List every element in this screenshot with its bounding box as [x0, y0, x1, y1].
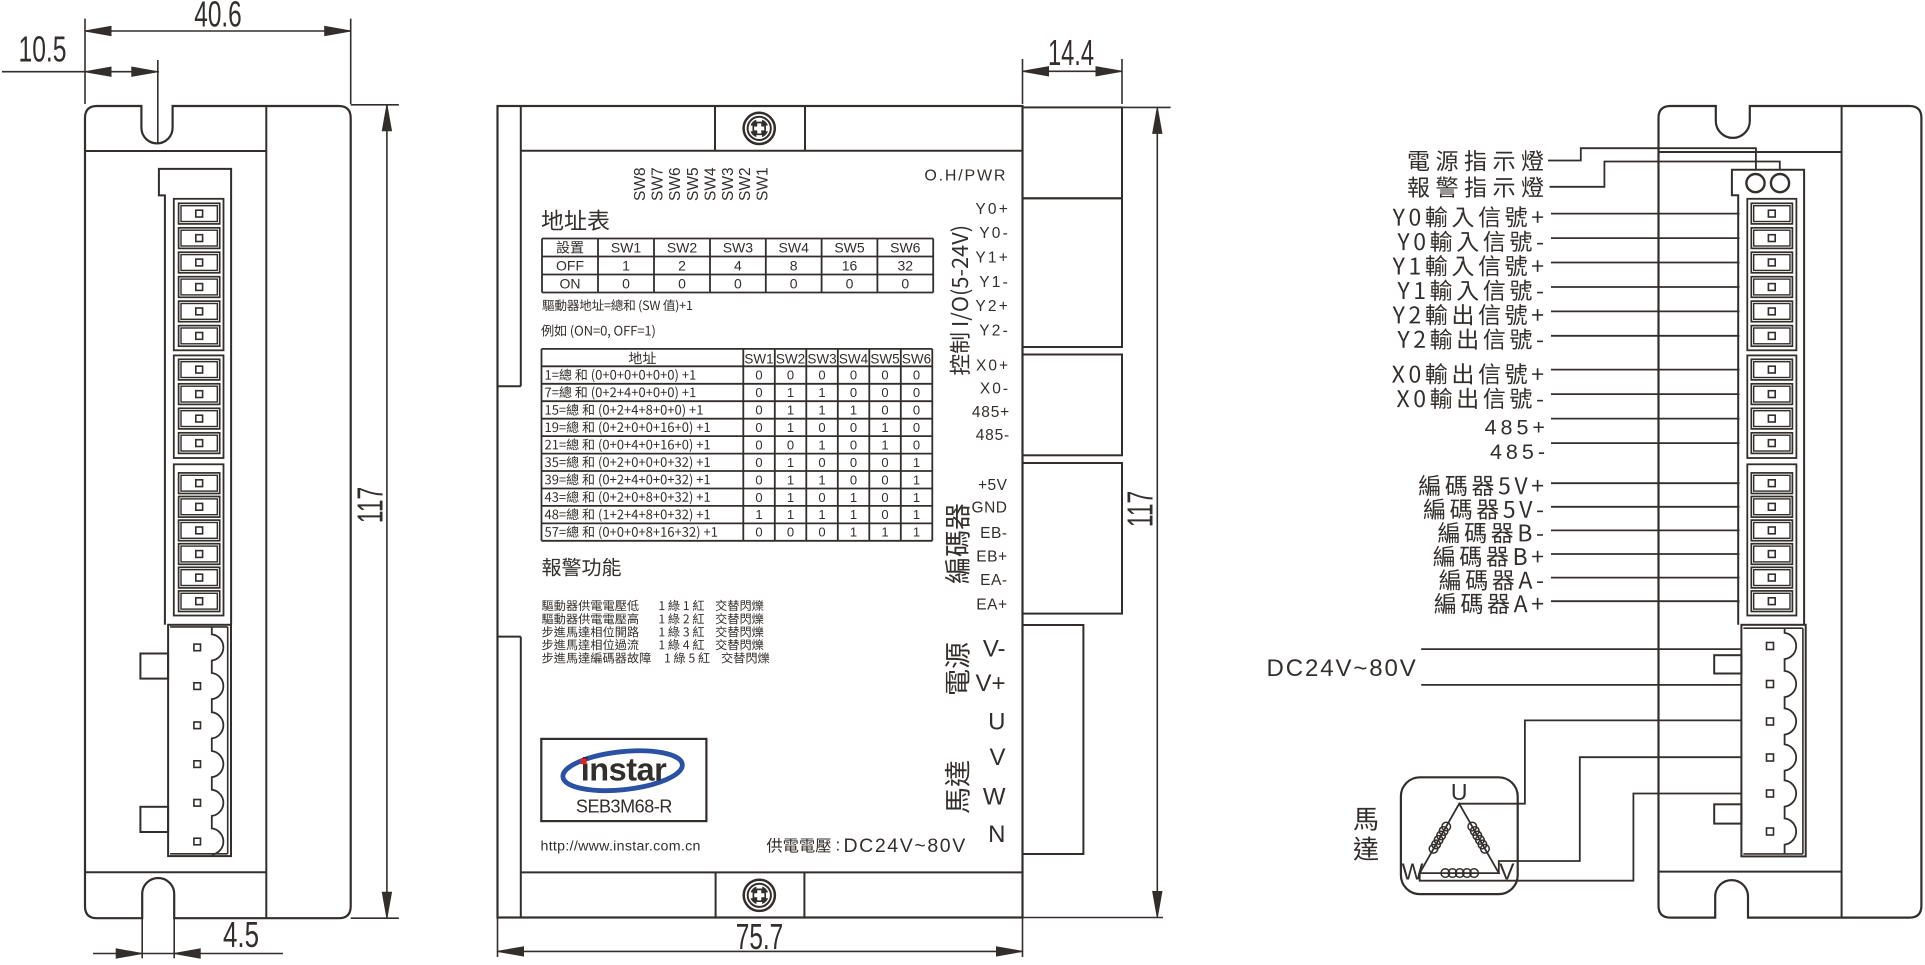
- svg-text:0: 0: [622, 276, 630, 292]
- svg-text:X0+: X0+: [976, 358, 1010, 375]
- svg-text:SW1: SW1: [611, 240, 642, 256]
- svg-text:0: 0: [850, 420, 857, 435]
- svg-text:0: 0: [913, 403, 920, 418]
- svg-text:U: U: [1451, 779, 1468, 805]
- svg-text:W: W: [983, 783, 1006, 810]
- svg-text:0: 0: [787, 437, 794, 452]
- svg-text:4.5: 4.5: [223, 915, 259, 955]
- svg-text:1: 1: [850, 403, 857, 418]
- svg-text:EB-: EB-: [980, 525, 1007, 542]
- svg-text:1: 1: [913, 472, 920, 487]
- svg-text:0: 0: [755, 525, 762, 540]
- svg-text:1: 1: [850, 490, 857, 505]
- svg-text:SW4: SW4: [702, 167, 719, 201]
- svg-text:1: 1: [913, 507, 920, 522]
- svg-text:1: 1: [755, 507, 762, 522]
- svg-text:1: 1: [787, 385, 794, 400]
- svg-text:SW7: SW7: [650, 167, 667, 201]
- svg-text:0: 0: [913, 368, 920, 383]
- svg-text:0: 0: [678, 276, 686, 292]
- svg-text:Y2-: Y2-: [979, 323, 1010, 340]
- svg-text:0: 0: [787, 368, 794, 383]
- svg-text:4: 4: [734, 258, 742, 274]
- svg-text:0: 0: [913, 385, 920, 400]
- svg-text:0: 0: [881, 403, 888, 418]
- svg-text:DC24V~80V: DC24V~80V: [844, 835, 967, 857]
- svg-text:EA+: EA+: [976, 597, 1007, 614]
- svg-text:1: 1: [787, 403, 794, 418]
- svg-text:O.H/PWR: O.H/PWR: [924, 167, 1007, 184]
- svg-text:0: 0: [755, 385, 762, 400]
- svg-text:OFF: OFF: [556, 258, 584, 274]
- svg-text:0: 0: [818, 420, 825, 435]
- svg-text:SW3: SW3: [723, 240, 754, 256]
- svg-text:0: 0: [818, 368, 825, 383]
- svg-text:V: V: [1499, 859, 1515, 885]
- svg-text:0: 0: [755, 368, 762, 383]
- svg-text:http://www.instar.com.cn: http://www.instar.com.cn: [541, 839, 701, 855]
- svg-text:0: 0: [850, 368, 857, 383]
- svg-text:SW1: SW1: [755, 167, 772, 201]
- svg-text:Y0+: Y0+: [975, 201, 1010, 218]
- svg-text:0: 0: [755, 472, 762, 487]
- svg-text:1: 1: [913, 455, 920, 470]
- svg-text:SW3: SW3: [720, 167, 737, 201]
- svg-text:1: 1: [913, 525, 920, 540]
- svg-text:X0-: X0-: [980, 381, 1010, 398]
- svg-text:485-: 485-: [1490, 440, 1549, 464]
- svg-text:1: 1: [787, 420, 794, 435]
- svg-text::: :: [836, 836, 841, 855]
- svg-text:0: 0: [850, 472, 857, 487]
- svg-text:0: 0: [755, 455, 762, 470]
- svg-text:EB+: EB+: [976, 549, 1007, 566]
- svg-text:EA-: EA-: [980, 572, 1007, 589]
- svg-text:1: 1: [881, 420, 888, 435]
- svg-text:1: 1: [818, 507, 825, 522]
- svg-text:V+: V+: [975, 670, 1005, 697]
- svg-text:0: 0: [846, 276, 854, 292]
- svg-text:1: 1: [850, 507, 857, 522]
- svg-text:485+: 485+: [972, 404, 1010, 421]
- svg-text:0: 0: [881, 490, 888, 505]
- svg-text:0: 0: [881, 507, 888, 522]
- svg-text:W: W: [1402, 859, 1424, 885]
- svg-text:0: 0: [850, 437, 857, 452]
- svg-text:SW4: SW4: [779, 240, 810, 256]
- svg-text:0: 0: [818, 455, 825, 470]
- svg-text:0: 0: [881, 368, 888, 383]
- svg-text:1: 1: [818, 437, 825, 452]
- svg-text:Y2+: Y2+: [975, 298, 1010, 315]
- svg-text:SW5: SW5: [834, 240, 865, 256]
- svg-text:16: 16: [842, 258, 858, 274]
- svg-text:Y1+: Y1+: [975, 250, 1010, 267]
- svg-text:117: 117: [351, 487, 390, 523]
- svg-text:GND: GND: [972, 499, 1008, 516]
- svg-text:Y1-: Y1-: [979, 274, 1010, 291]
- svg-text:1: 1: [913, 490, 920, 505]
- svg-text:+5V: +5V: [978, 477, 1008, 494]
- svg-text:0: 0: [755, 490, 762, 505]
- svg-text:0: 0: [734, 276, 742, 292]
- svg-text:0: 0: [787, 525, 794, 540]
- svg-text:117: 117: [1121, 491, 1160, 527]
- svg-text:0: 0: [755, 420, 762, 435]
- svg-text:1: 1: [881, 525, 888, 540]
- svg-text:0: 0: [913, 420, 920, 435]
- svg-text:ON: ON: [560, 276, 581, 292]
- svg-text:0: 0: [881, 455, 888, 470]
- svg-text:instar: instar: [581, 752, 667, 788]
- svg-text:N: N: [988, 821, 1005, 848]
- svg-text:1: 1: [787, 472, 794, 487]
- svg-text:SW8: SW8: [632, 167, 649, 201]
- svg-text:0: 0: [913, 437, 920, 452]
- svg-text:SW3: SW3: [807, 351, 836, 366]
- svg-text:1: 1: [787, 490, 794, 505]
- svg-text:1: 1: [818, 472, 825, 487]
- svg-text:SW5: SW5: [870, 351, 899, 366]
- svg-text:0: 0: [901, 276, 909, 292]
- svg-text:V: V: [989, 744, 1005, 771]
- svg-text:SW4: SW4: [839, 351, 869, 366]
- svg-text:SW6: SW6: [890, 240, 921, 256]
- svg-text:SW2: SW2: [737, 167, 754, 201]
- svg-text:0: 0: [818, 525, 825, 540]
- svg-text:SW5: SW5: [685, 167, 702, 201]
- svg-text:40.6: 40.6: [194, 0, 242, 34]
- svg-text:Y0-: Y0-: [979, 225, 1010, 242]
- svg-text:2: 2: [678, 258, 686, 274]
- svg-text:SW2: SW2: [776, 351, 805, 366]
- svg-text:0: 0: [790, 276, 798, 292]
- svg-text:DC24V~80V: DC24V~80V: [1267, 655, 1418, 682]
- svg-text:14.4: 14.4: [1048, 33, 1094, 73]
- svg-text:10.5: 10.5: [19, 29, 67, 70]
- svg-text:1: 1: [818, 385, 825, 400]
- svg-text:1: 1: [787, 455, 794, 470]
- svg-text:0: 0: [881, 472, 888, 487]
- svg-text:SEB3M68-R: SEB3M68-R: [576, 796, 672, 816]
- svg-text:0: 0: [850, 455, 857, 470]
- svg-text:0: 0: [818, 490, 825, 505]
- svg-text:0: 0: [881, 385, 888, 400]
- svg-text:SW6: SW6: [902, 351, 931, 366]
- svg-text:SW6: SW6: [667, 167, 684, 201]
- svg-text:485+: 485+: [1485, 416, 1549, 440]
- svg-text:SW1: SW1: [744, 351, 773, 366]
- svg-text:1: 1: [818, 403, 825, 418]
- svg-text:U: U: [988, 709, 1005, 736]
- svg-text:1: 1: [787, 507, 794, 522]
- svg-text:32: 32: [898, 258, 914, 274]
- svg-text:0: 0: [755, 437, 762, 452]
- svg-text:0: 0: [850, 385, 857, 400]
- svg-text:0: 0: [755, 403, 762, 418]
- svg-text:1: 1: [881, 437, 888, 452]
- svg-text:V-: V-: [983, 636, 1006, 663]
- svg-text:485-: 485-: [976, 427, 1010, 444]
- svg-text:1: 1: [850, 525, 857, 540]
- svg-text:SW2: SW2: [667, 240, 698, 256]
- svg-text:8: 8: [790, 258, 798, 274]
- svg-text:1: 1: [622, 258, 630, 274]
